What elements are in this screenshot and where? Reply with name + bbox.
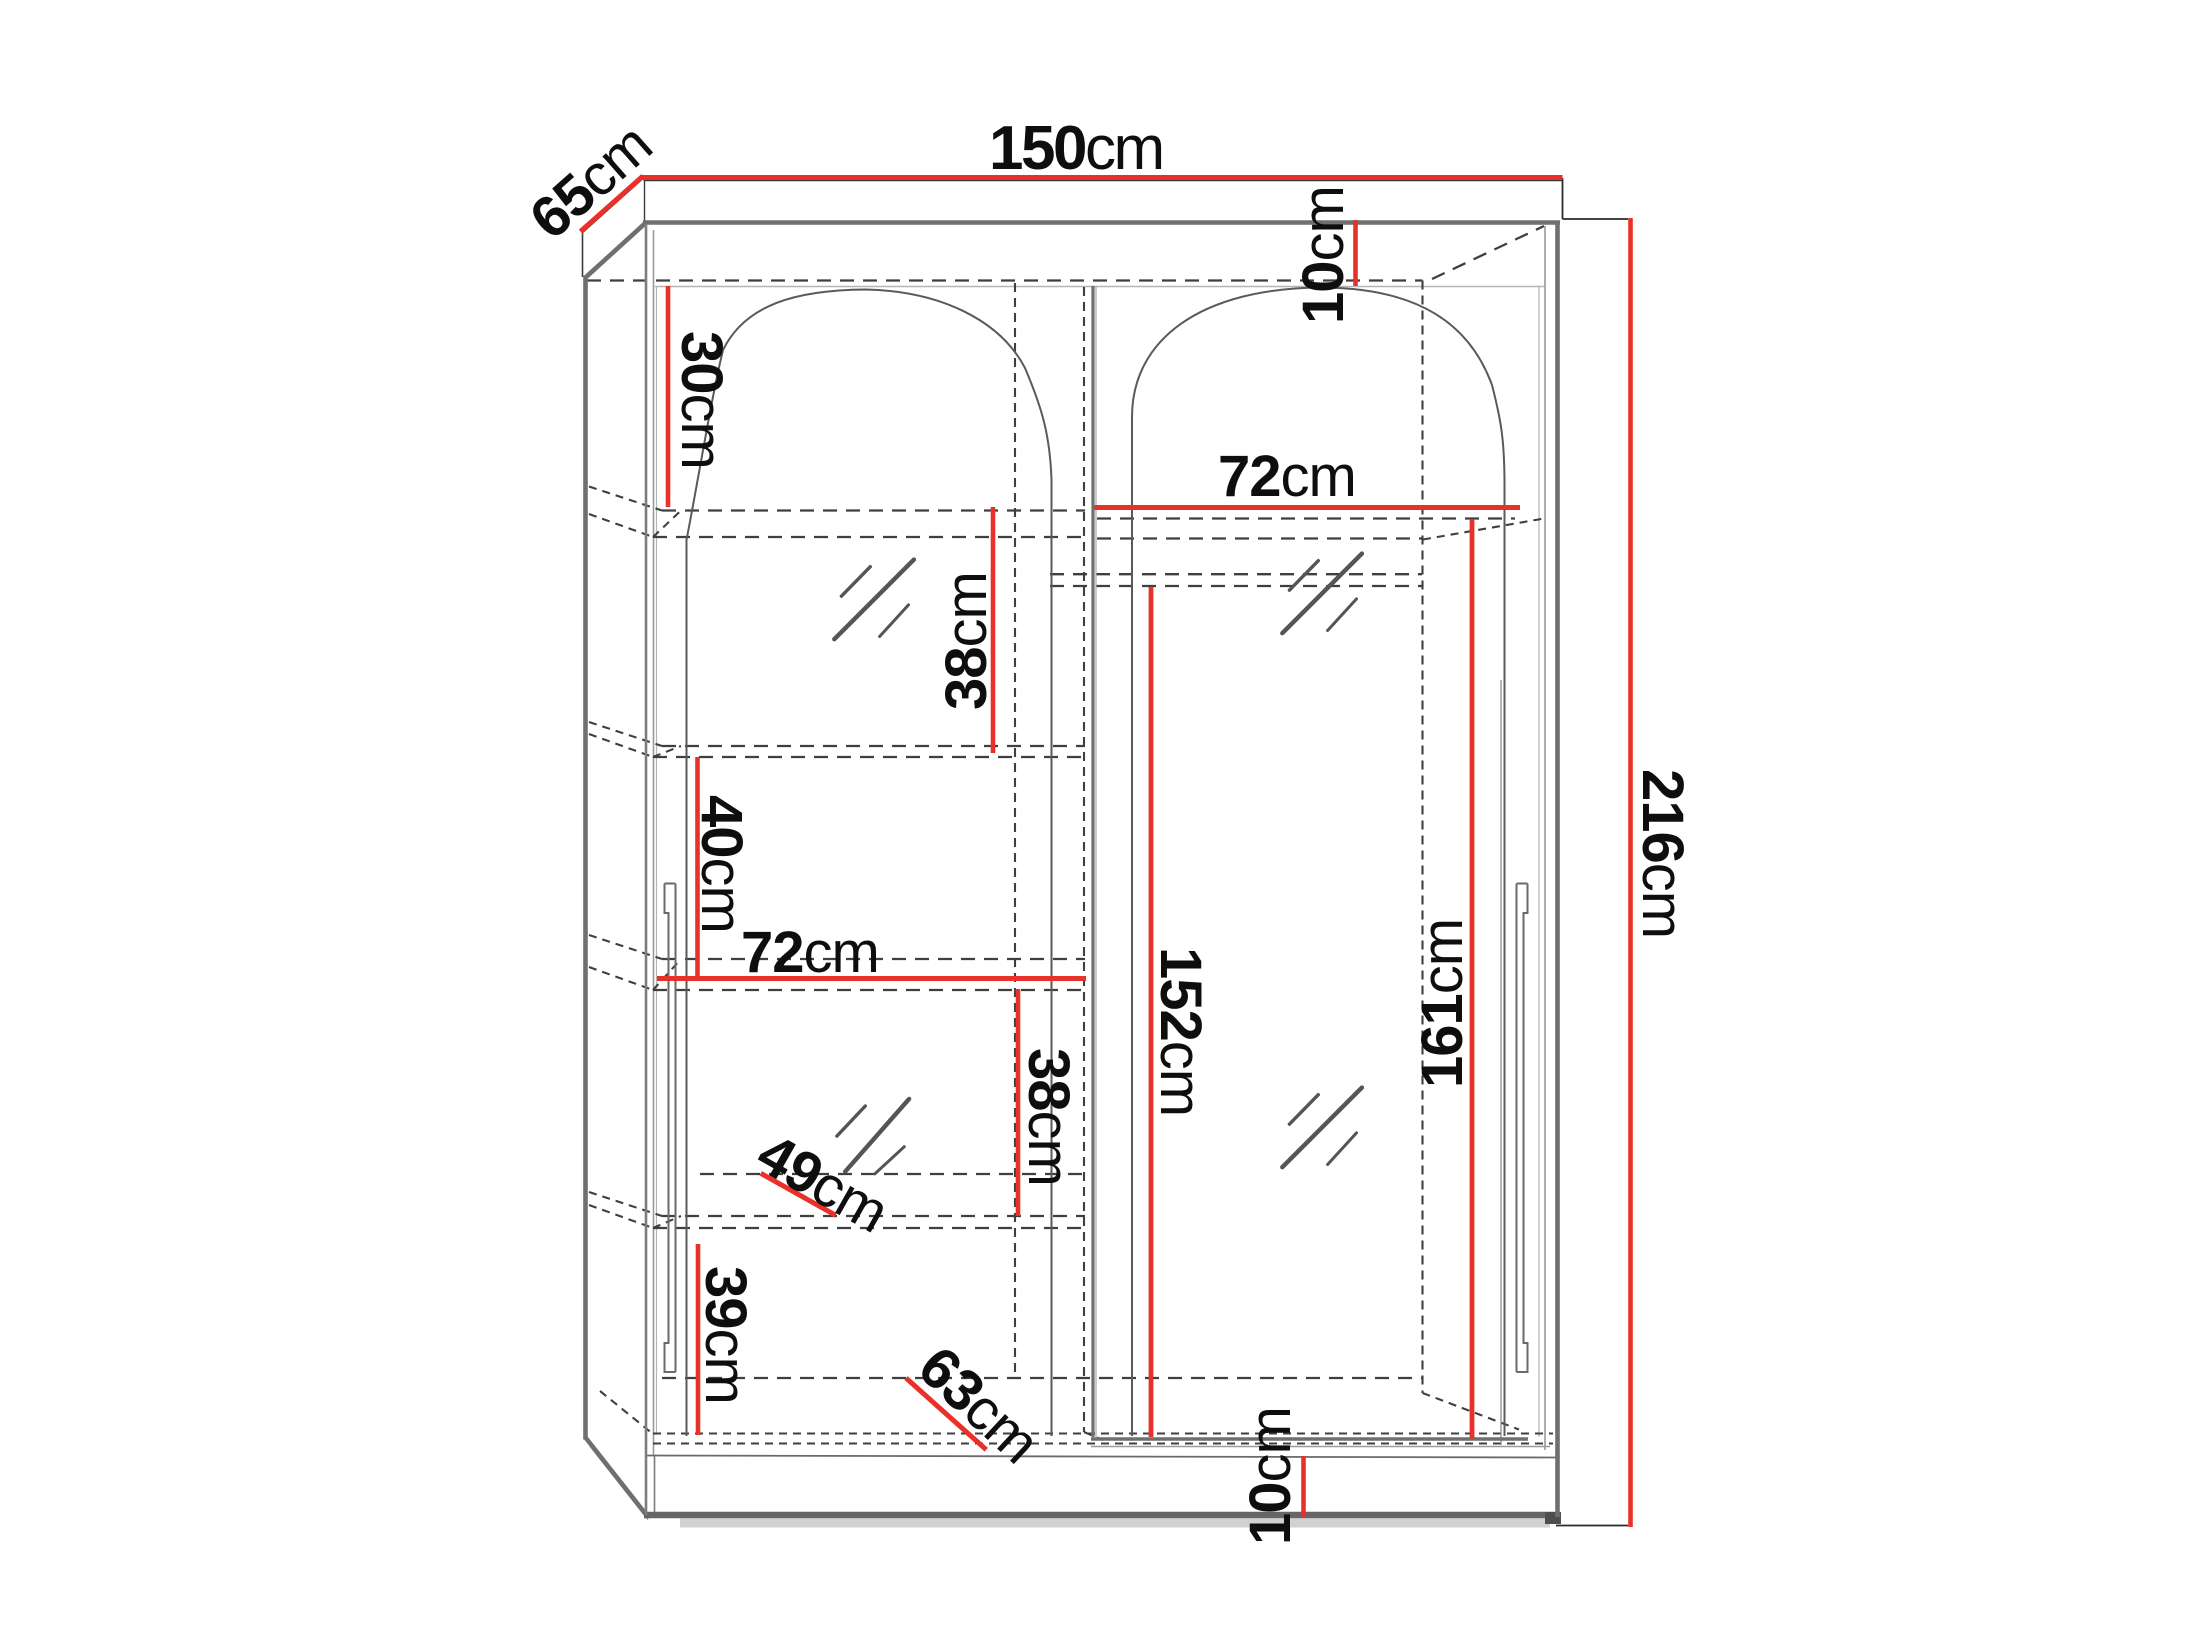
svg-text:72cm: 72cm	[1218, 444, 1356, 509]
svg-text:38cm: 38cm	[934, 572, 999, 710]
svg-text:216cm: 216cm	[1630, 769, 1695, 938]
svg-text:10cm: 10cm	[1238, 1407, 1303, 1545]
svg-text:38cm: 38cm	[1016, 1048, 1081, 1186]
svg-text:150cm: 150cm	[989, 114, 1163, 183]
svg-text:10cm: 10cm	[1291, 186, 1356, 324]
svg-text:152cm: 152cm	[1148, 947, 1213, 1116]
svg-text:72cm: 72cm	[741, 920, 879, 985]
svg-text:39cm: 39cm	[693, 1266, 758, 1404]
svg-text:40cm: 40cm	[689, 795, 754, 933]
svg-text:30cm: 30cm	[669, 331, 734, 469]
svg-text:161cm: 161cm	[1410, 919, 1475, 1088]
